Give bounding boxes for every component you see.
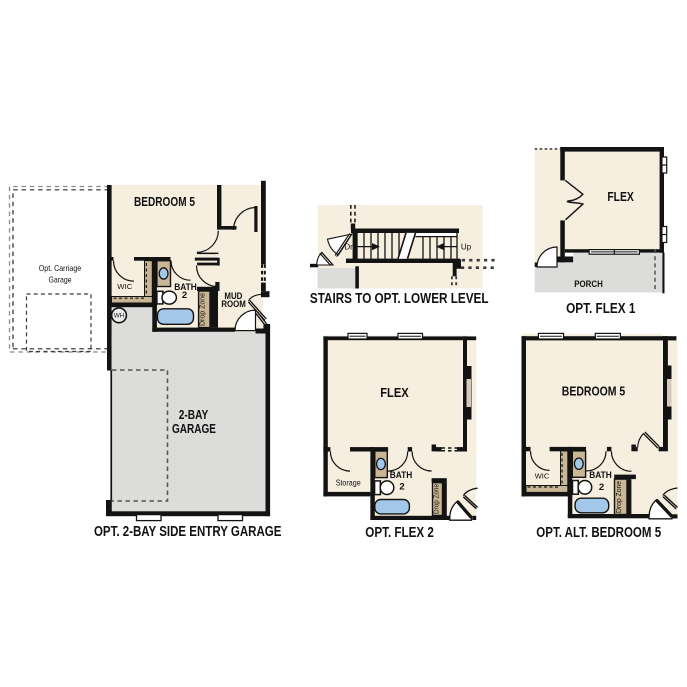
svg-text:PORCH: PORCH	[574, 279, 603, 290]
svg-text:OPT. 2-BAY SIDE ENTRY GARAGE: OPT. 2-BAY SIDE ENTRY GARAGE	[94, 524, 282, 540]
svg-text:WH: WH	[114, 313, 124, 320]
svg-text:2: 2	[182, 290, 187, 301]
svg-text:Drop Zone: Drop Zone	[432, 484, 441, 514]
svg-text:Drop Zone: Drop Zone	[614, 481, 623, 513]
svg-text:2: 2	[599, 482, 604, 493]
svg-text:WIC: WIC	[535, 472, 550, 481]
svg-text:OPT. FLEX 2: OPT. FLEX 2	[365, 525, 434, 541]
svg-text:Up: Up	[461, 243, 472, 252]
svg-text:2: 2	[399, 482, 404, 493]
svg-text:STAIRS TO OPT. LOWER LEVEL: STAIRS TO OPT. LOWER LEVEL	[310, 291, 489, 307]
svg-text:OPT. FLEX 1: OPT. FLEX 1	[566, 301, 635, 317]
svg-text:Dn: Dn	[344, 243, 354, 252]
svg-text:WIC: WIC	[117, 282, 133, 291]
svg-text:ROOM: ROOM	[221, 299, 246, 309]
svg-text:Garage: Garage	[49, 275, 72, 285]
svg-text:2-BAY: 2-BAY	[179, 408, 209, 422]
svg-text:OPT. ALT. BEDROOM 5: OPT. ALT. BEDROOM 5	[536, 525, 661, 541]
svg-text:GARAGE: GARAGE	[172, 422, 216, 436]
svg-text:Storage: Storage	[336, 478, 361, 487]
svg-text:Drop Zone: Drop Zone	[198, 293, 207, 326]
svg-text:BEDROOM 5: BEDROOM 5	[562, 384, 626, 398]
svg-text:FLEX: FLEX	[380, 386, 409, 400]
svg-text:BEDROOM 5: BEDROOM 5	[134, 195, 195, 209]
svg-text:FLEX: FLEX	[607, 190, 634, 204]
svg-text:Opt. Carriage: Opt. Carriage	[39, 263, 82, 273]
svg-text:BATH: BATH	[390, 470, 413, 481]
svg-text:BATH: BATH	[589, 470, 612, 481]
